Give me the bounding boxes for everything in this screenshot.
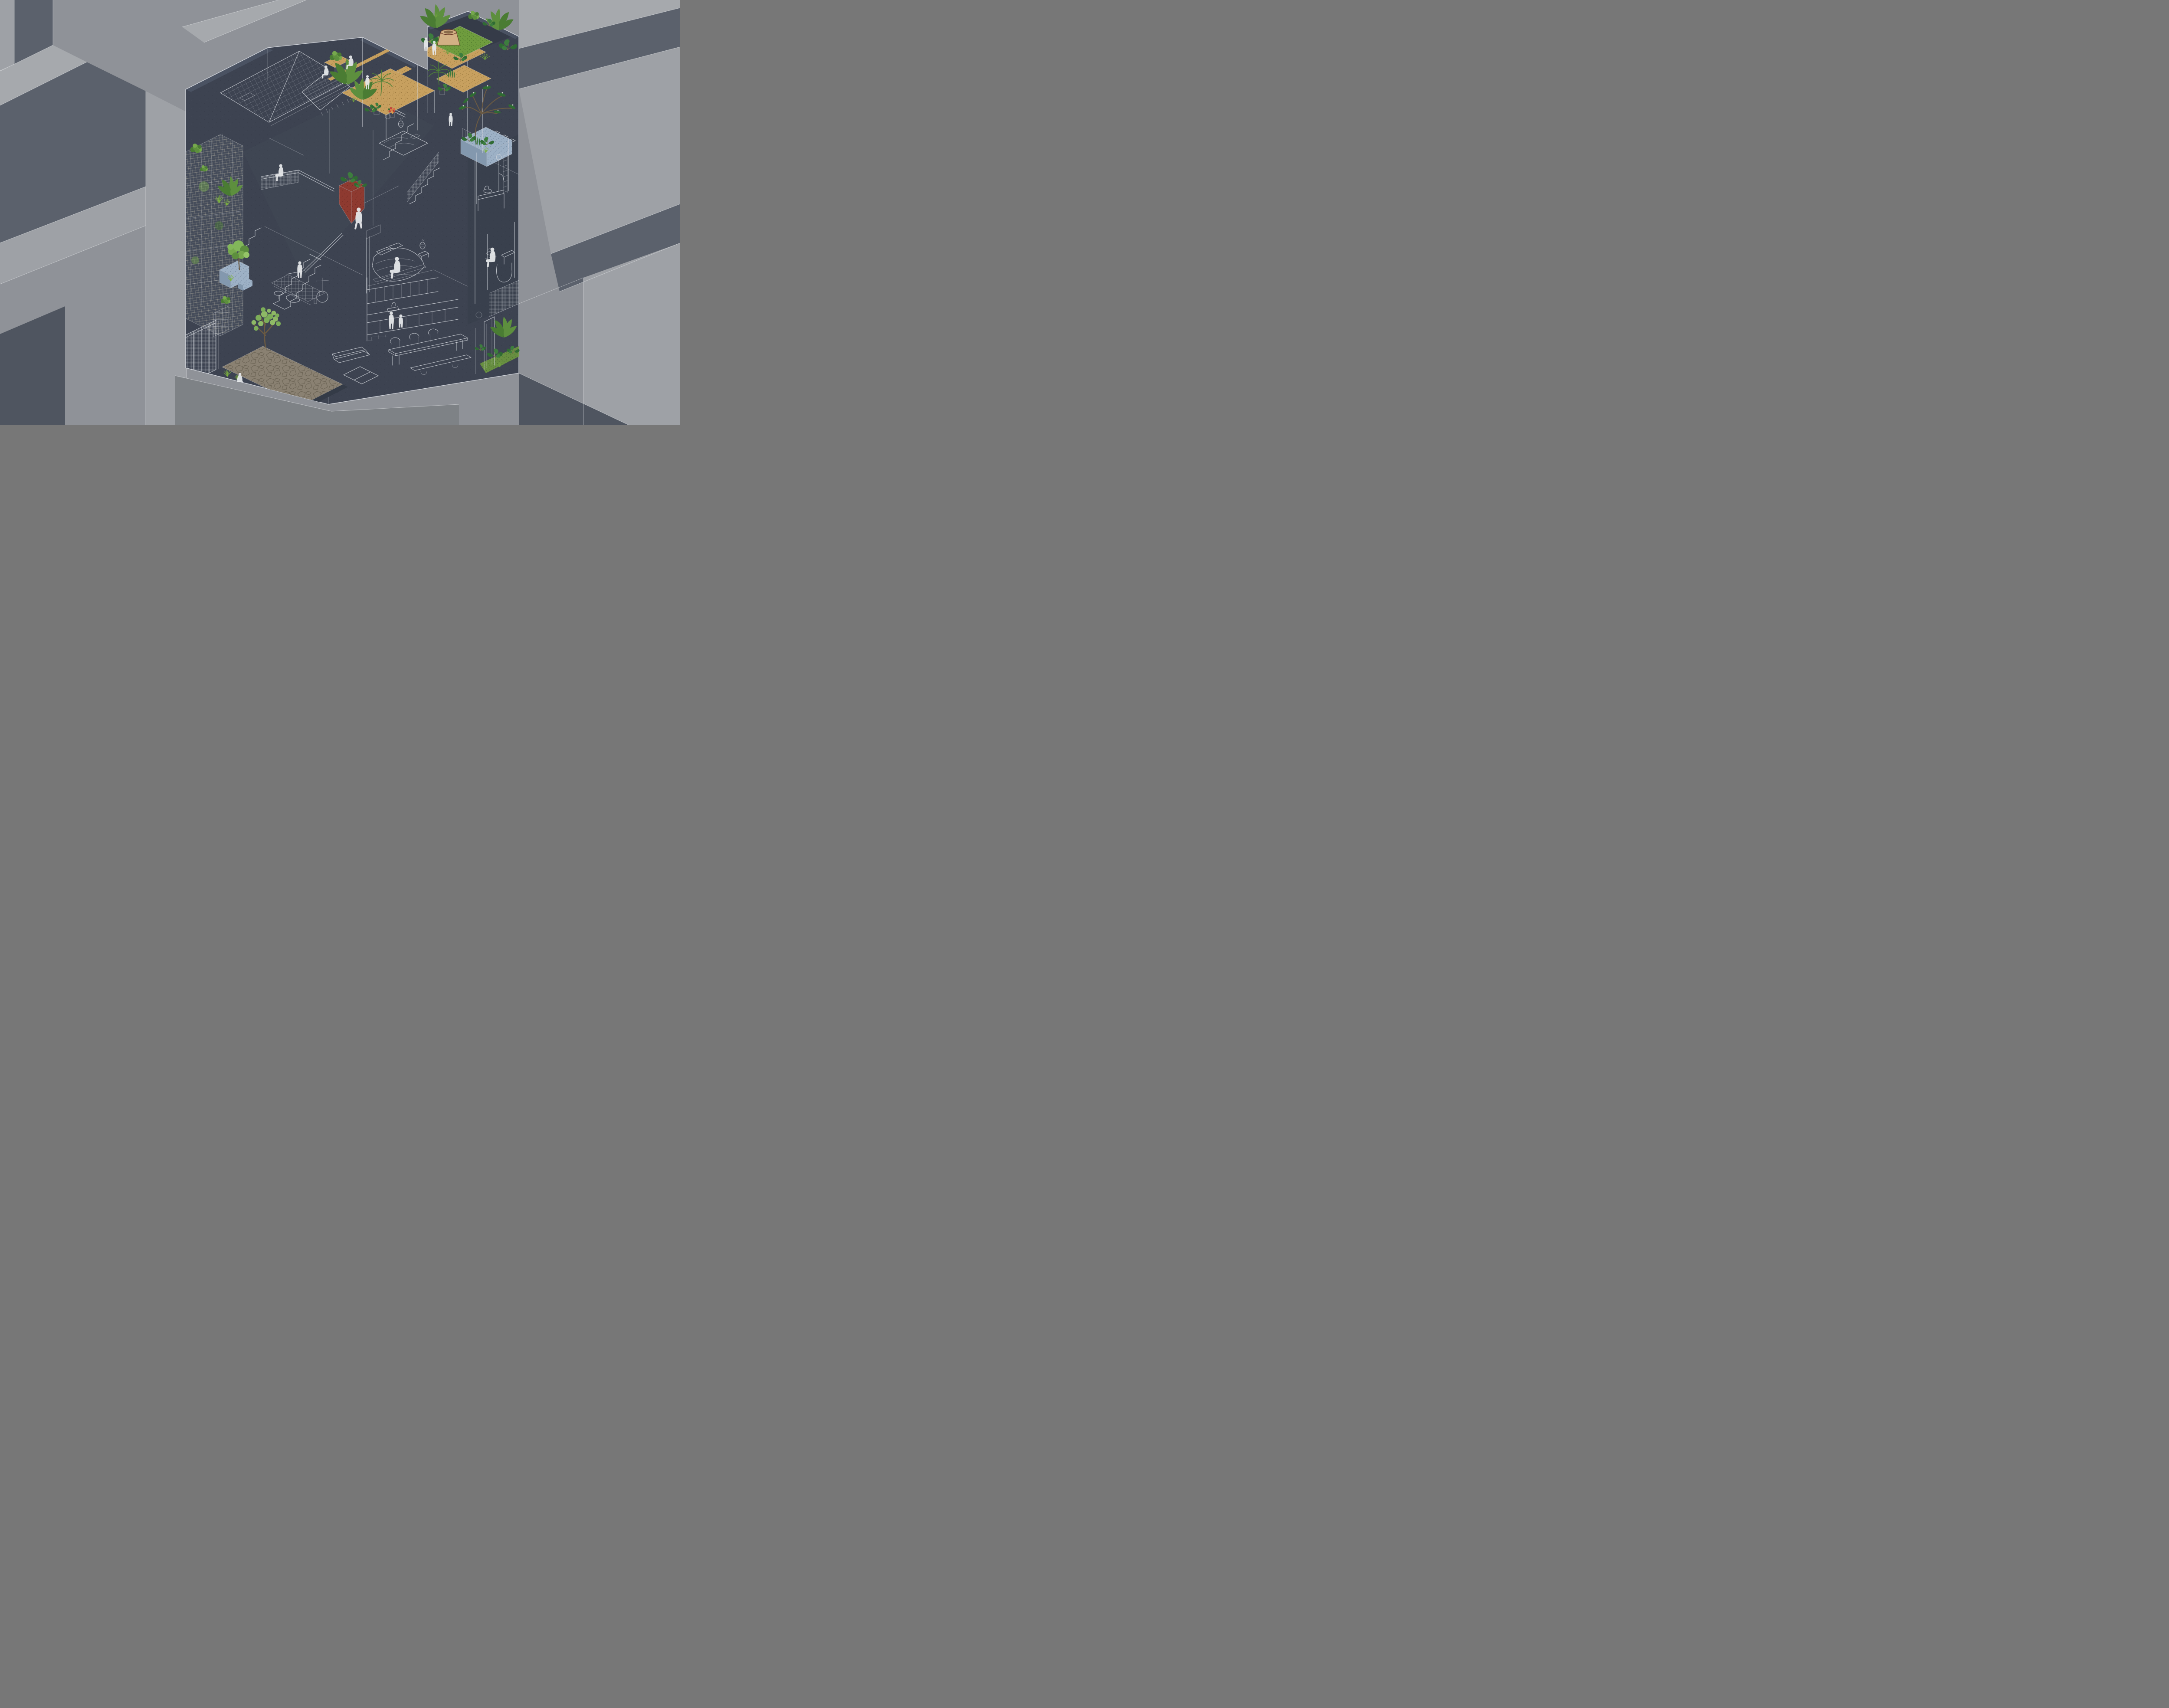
illustration-canvas [0,0,680,425]
axonometric-scene [0,0,680,425]
perforated-brick-screen [180,134,243,336]
